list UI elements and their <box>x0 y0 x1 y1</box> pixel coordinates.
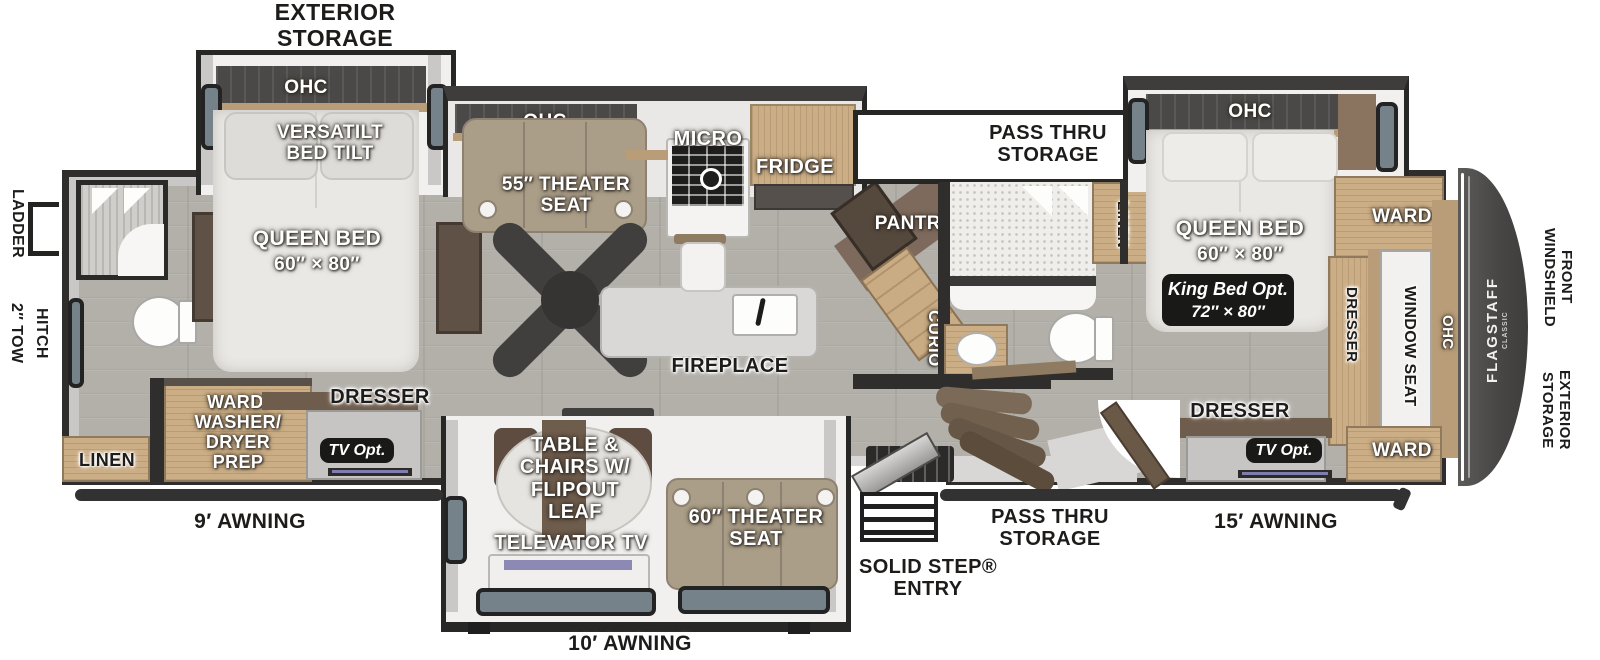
front-ohc-label: OHC <box>1214 101 1286 122</box>
front-cap-trim <box>1461 173 1464 481</box>
front-windshield-label: FRONT WINDSHIELD <box>1532 206 1574 348</box>
awning-15-label: 15′ AWNING <box>1184 510 1368 534</box>
front-ward-bottom-label: WARD <box>1356 440 1448 461</box>
televator-label: TELEVATOR TV <box>479 532 663 554</box>
front-bed-pillow <box>1252 132 1338 182</box>
front-queen-size-label: 60″ × 80″ <box>1168 244 1312 265</box>
ladder-label: LADDER <box>0 178 26 270</box>
solid-step-icon <box>860 492 938 542</box>
pass-thru-top-label: PASS THRU STORAGE <box>958 122 1138 167</box>
awning-10-label: 10′ AWNING <box>538 632 722 656</box>
garage-side-window <box>444 496 467 564</box>
vanity-sink <box>956 332 998 366</box>
mid-toilet-tank <box>1094 316 1114 362</box>
brand-sub-label: CLASSIC <box>1502 302 1512 358</box>
front-cap-trim <box>1468 176 1470 478</box>
window-seat-label: WINDOW SEAT <box>1394 256 1418 436</box>
rear-linen-label: LINEN <box>66 450 148 470</box>
rear-queen-bed-label: QUEEN BED <box>235 227 399 251</box>
side-ohc-label: OHC <box>1435 308 1455 356</box>
exterior-storage-top-label: EXTERIOR STORAGE <box>233 0 437 44</box>
exterior-storage-right-label: EXTERIOR STORAGE <box>1530 350 1572 470</box>
dinette-label: TABLE & CHAIRS W/ FLIPOUT LEAF <box>503 434 647 524</box>
shower-door-icon <box>1058 186 1088 216</box>
garage-window <box>678 586 830 614</box>
rear-tv-opt-badge: TV Opt. <box>320 438 394 463</box>
theater-seat-60-label: 60″ THEATER SEAT <box>682 506 830 551</box>
window-seat-trim <box>1368 250 1380 442</box>
slide-foot <box>788 622 810 634</box>
rear-bath-window <box>68 298 84 388</box>
counter-strip <box>626 150 668 160</box>
rear-wardrobe <box>436 222 482 334</box>
shower-ledge <box>950 276 1096 286</box>
rear-ohc-label: OHC <box>270 77 342 98</box>
rear-tv-screen <box>332 470 408 473</box>
floorplan-canvas: FLAGSTAFF CLASSIC FRONT WINDSHIELD EXTER… <box>0 0 1600 660</box>
televator-screen <box>504 560 632 570</box>
theater-seat-55-label: 55″ THEATER SEAT <box>492 174 640 217</box>
micro-label: MICRO <box>668 128 748 150</box>
range-burner <box>700 168 722 190</box>
rear-dresser-label: DRESSER <box>300 386 460 408</box>
tow-hitch-label: 2″ TOW HITCH <box>0 284 50 382</box>
front-slide-cabinet <box>1338 94 1376 170</box>
front-slide-window <box>1376 102 1398 172</box>
island-chair <box>680 242 726 292</box>
front-tv-screen <box>1242 472 1328 475</box>
pass-thru-bottom-label: PASS THRU STORAGE <box>960 506 1140 551</box>
front-queen-bed-label: QUEEN BED <box>1158 217 1322 241</box>
solid-step-entry-label: SOLID STEP® ENTRY <box>838 556 1018 601</box>
rear-queen-size-label: 60″ × 80″ <box>247 254 387 275</box>
cupholder-icon <box>672 488 691 507</box>
ladder-icon <box>28 202 59 256</box>
shower-door-icon <box>1022 186 1052 216</box>
fridge-label: FRIDGE <box>753 156 837 178</box>
versatilt-label: VERSATILT BED TILT <box>245 122 415 165</box>
slide-foot <box>468 622 490 634</box>
awning-9-label: 9′ AWNING <box>158 510 342 534</box>
awning-bar-9 <box>75 489 443 501</box>
shower-door-icon <box>124 188 150 214</box>
awning-bar-15 <box>940 489 1402 501</box>
front-dresser-label: DRESSER <box>1158 400 1322 422</box>
king-bed-option-badge: King Bed Opt. 72″ × 80″ <box>1162 274 1294 326</box>
front-bed-pillow <box>1162 132 1248 182</box>
garage-window <box>476 588 656 616</box>
front-tv-opt-badge: TV Opt. <box>1246 438 1322 463</box>
cupholder-icon <box>816 488 835 507</box>
shower-door-icon <box>92 188 118 214</box>
fireplace-label: FIREPLACE <box>648 355 812 377</box>
brand-logo: FLAGSTAFF <box>1484 252 1504 408</box>
side-dresser-label: DRESSER <box>1339 286 1359 364</box>
bedroom-wall <box>1120 180 1128 264</box>
ward-washer-top <box>164 378 312 386</box>
cupholder-icon <box>746 488 765 507</box>
shower-pan <box>950 286 1096 310</box>
ceiling-fan-hub <box>541 271 599 329</box>
bath-divider-wall <box>150 378 164 480</box>
